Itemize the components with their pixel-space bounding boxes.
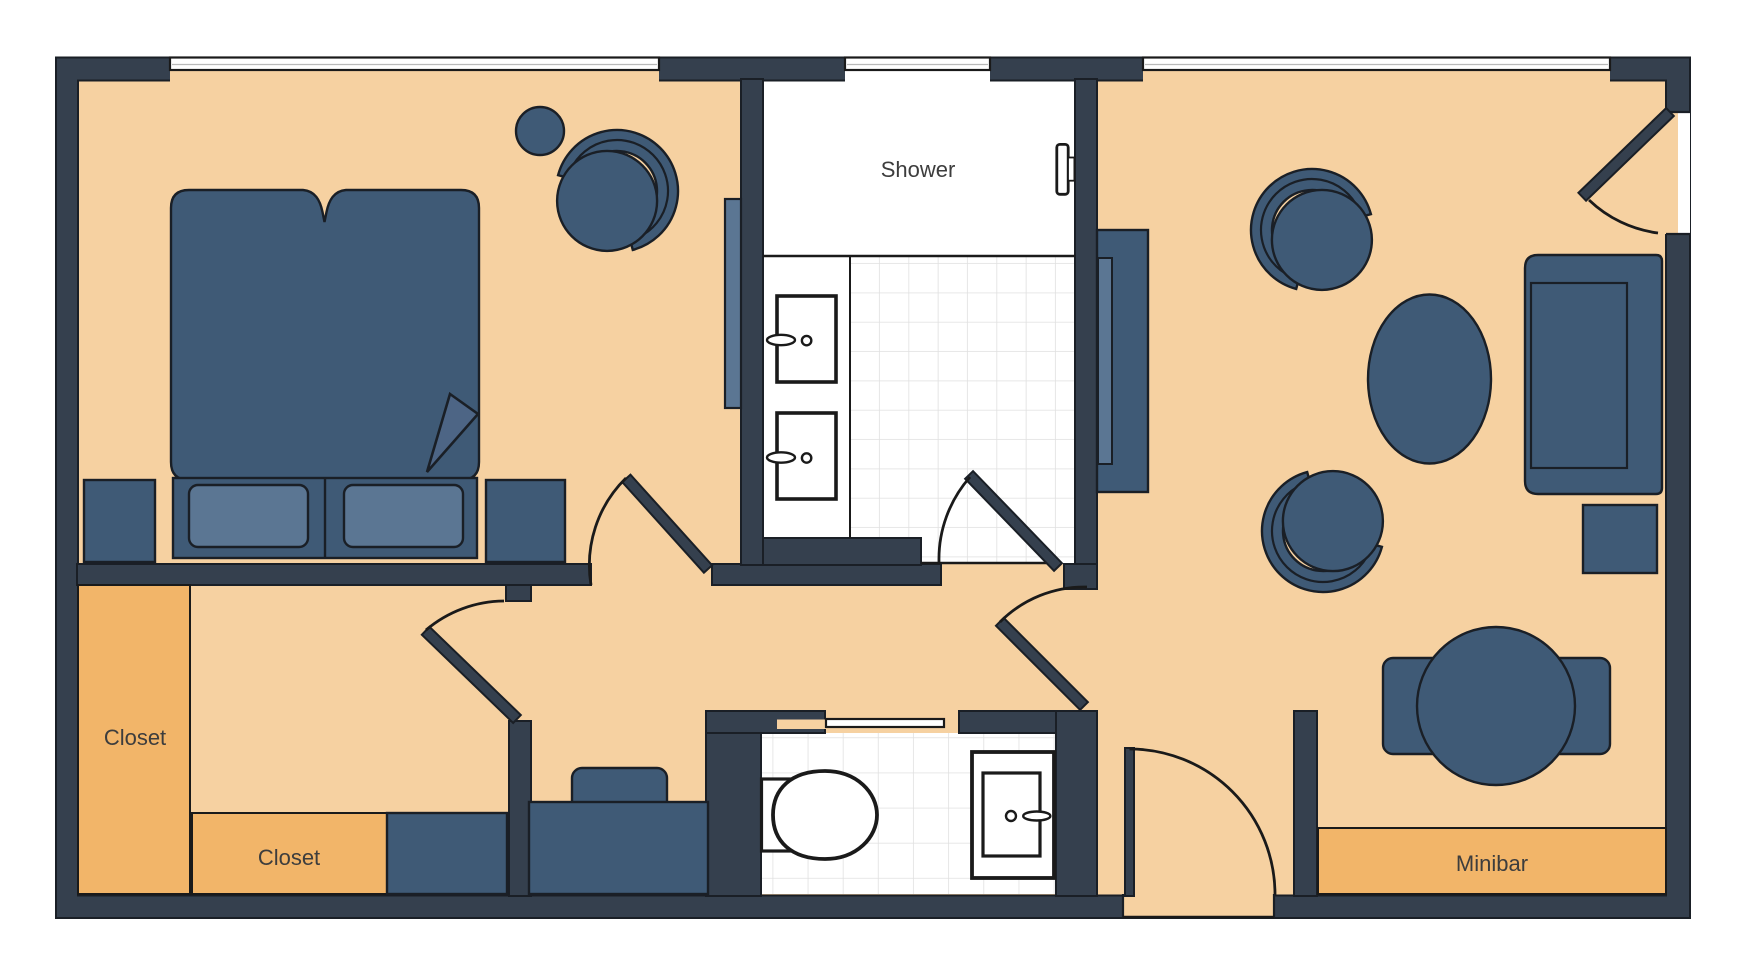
svg-text:Closet: Closet [104,725,166,750]
svg-text:Minibar: Minibar [1456,851,1528,876]
svg-text:Shower: Shower [881,157,956,182]
svg-text:Closet: Closet [258,845,320,870]
